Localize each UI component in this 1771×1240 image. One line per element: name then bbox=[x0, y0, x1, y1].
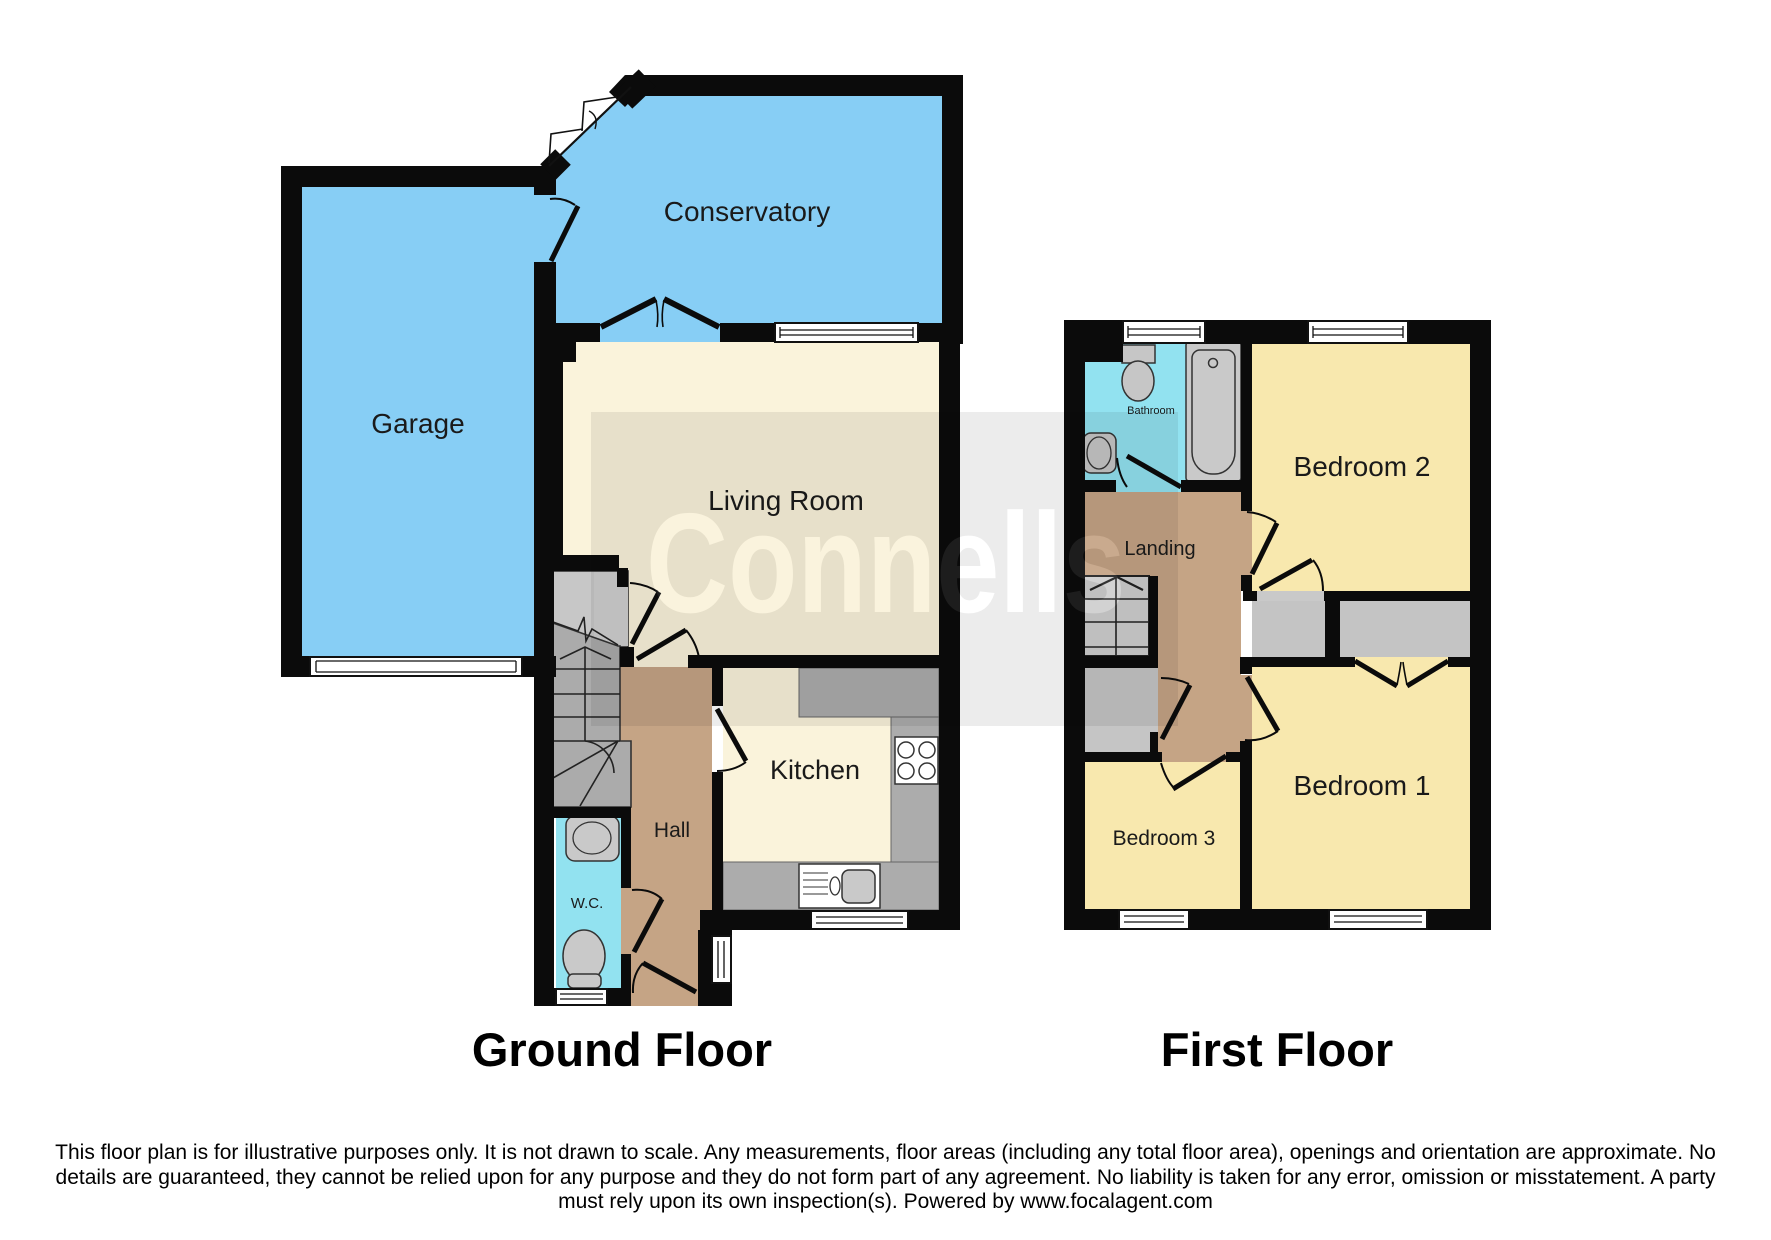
svg-text:W.C.: W.C. bbox=[571, 895, 604, 912]
svg-text:Bedroom 3: Bedroom 3 bbox=[1113, 827, 1216, 850]
svg-text:Kitchen: Kitchen bbox=[770, 755, 860, 785]
svg-text:Conservatory: Conservatory bbox=[664, 196, 831, 227]
svg-text:Hall: Hall bbox=[654, 819, 690, 842]
svg-text:Bedroom 1: Bedroom 1 bbox=[1294, 770, 1431, 801]
svg-text:Bedroom 2: Bedroom 2 bbox=[1294, 451, 1431, 482]
svg-text:Garage: Garage bbox=[371, 408, 464, 439]
